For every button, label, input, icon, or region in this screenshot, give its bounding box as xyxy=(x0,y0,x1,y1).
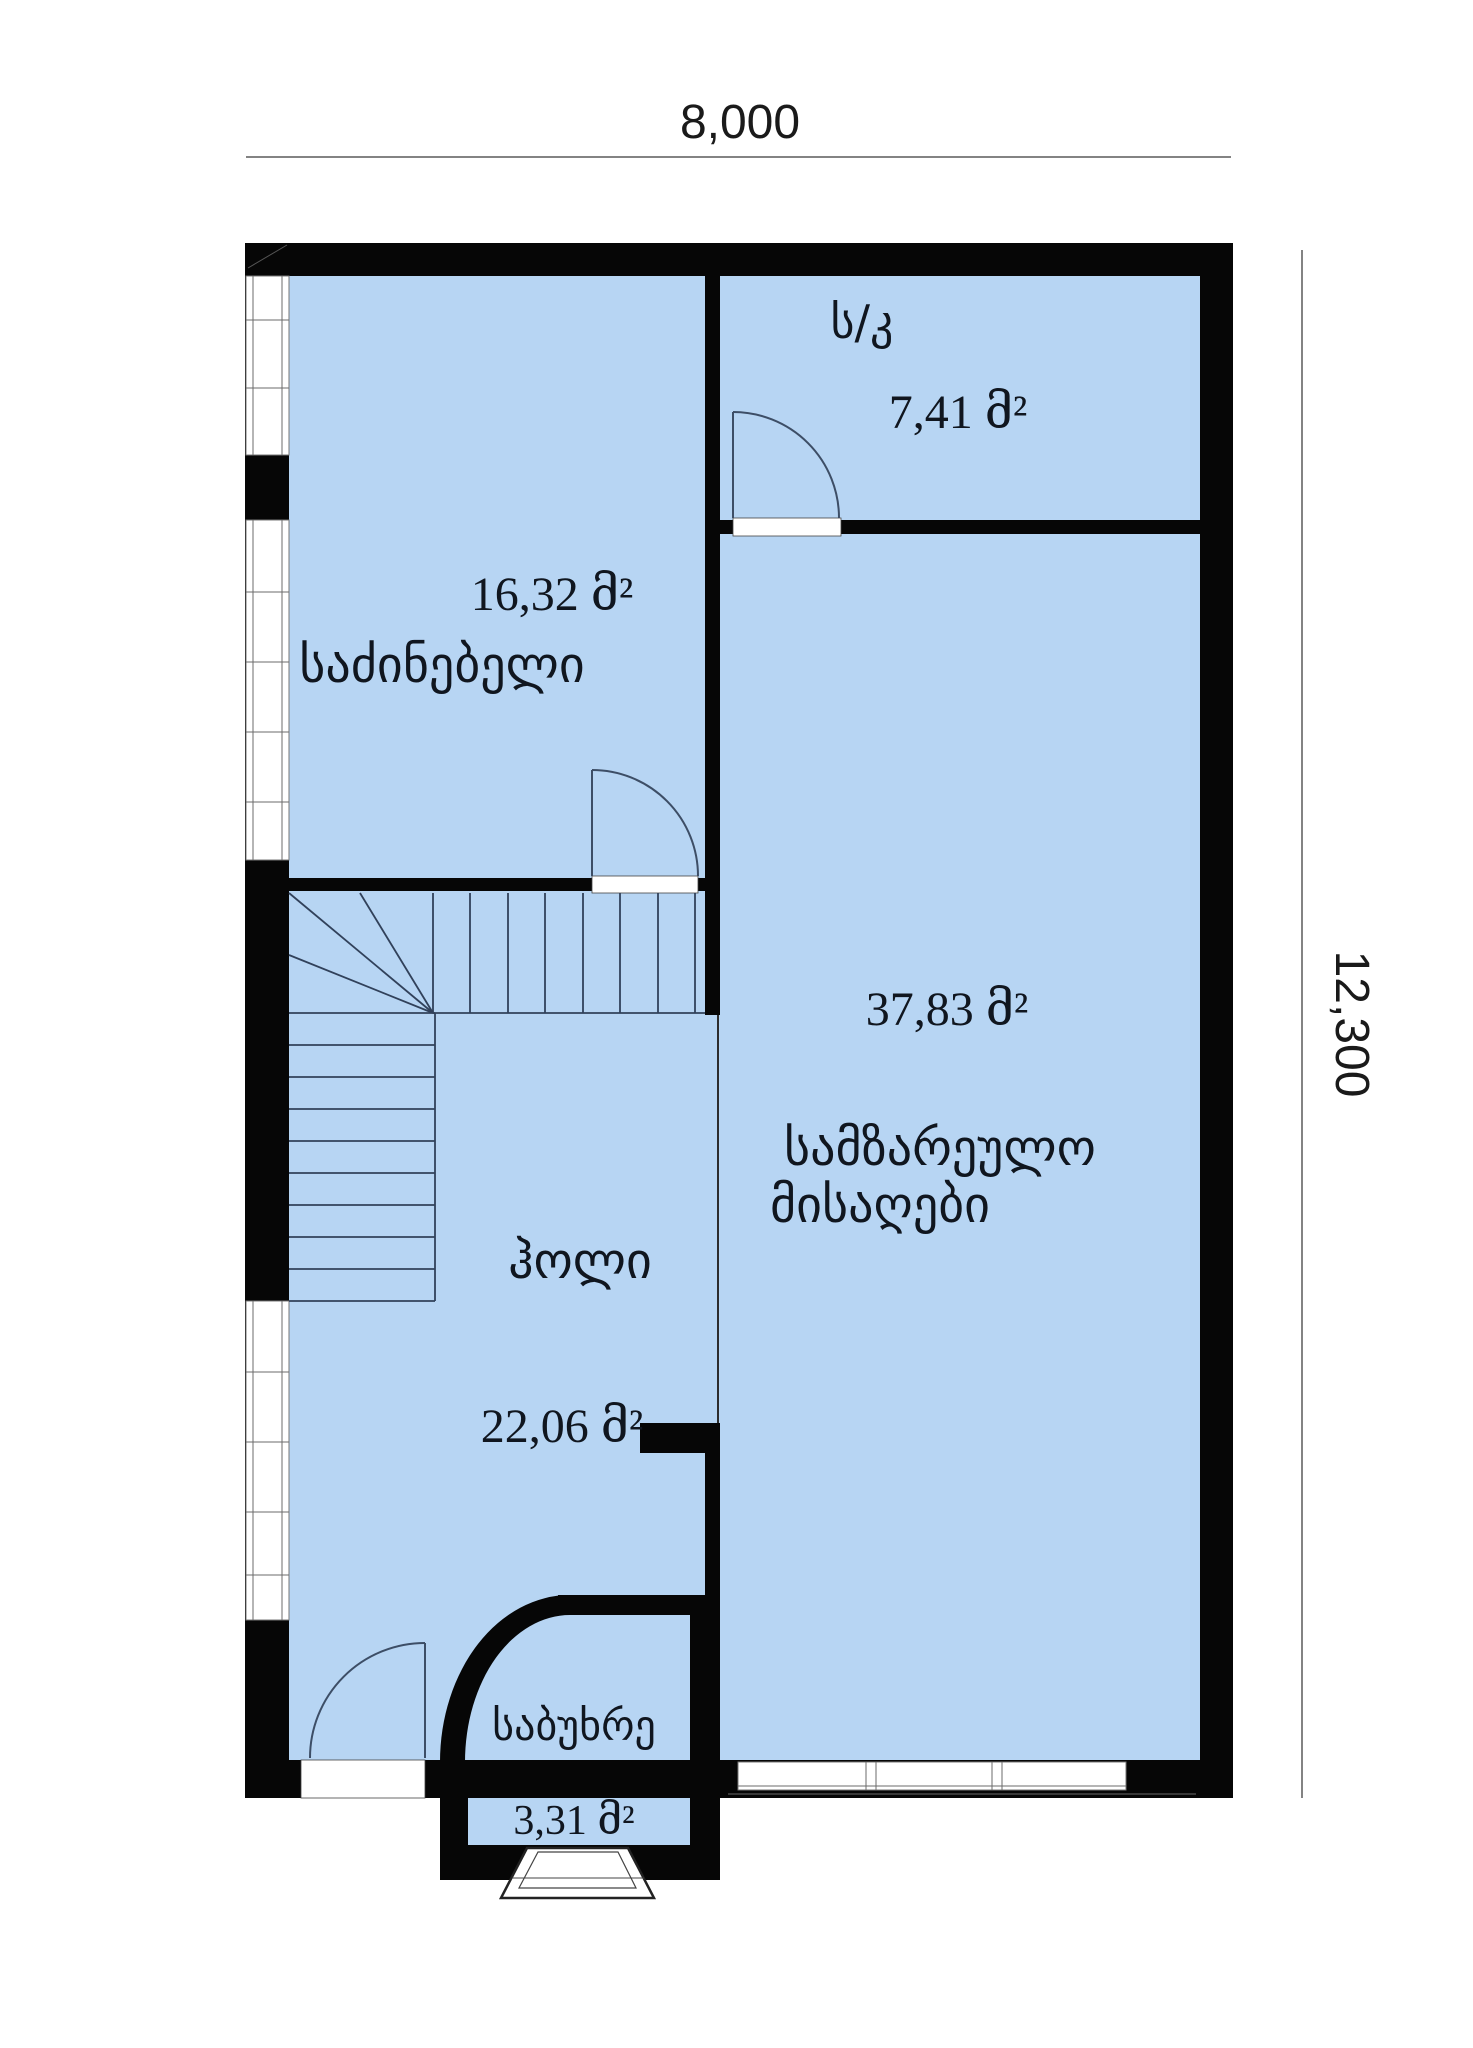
bathroom-door-opening xyxy=(733,518,841,536)
wall-top xyxy=(245,243,1233,276)
vestibule-wall-top xyxy=(558,1595,690,1615)
vestibule-wall-right xyxy=(690,1595,720,1880)
bedroom-window-upper xyxy=(246,276,289,455)
hall-area-label: 22,06 მ² xyxy=(481,1400,644,1453)
living-name-line1: სამზარეულო xyxy=(784,1119,1096,1177)
dimension-width-label: 8,000 xyxy=(680,96,800,149)
bedroom-area-label: 16,32 მ² xyxy=(471,568,634,621)
entry-steps-outline xyxy=(501,1848,654,1898)
bedroom-name-label: საძინებელი xyxy=(299,636,584,694)
bathroom-name-label: ს/კ xyxy=(830,295,893,349)
hall-name-label: ჰოლი xyxy=(508,1232,652,1290)
wall-hall-living-lower xyxy=(705,1423,720,1613)
vestibule-name-label: საბუხრე xyxy=(492,1701,656,1750)
vestibule-area-label: 3,31 მ² xyxy=(513,1798,634,1844)
floor-plan-page: 8,000 12,300 xyxy=(0,0,1473,2048)
bathroom-area-label: 7,41 მ² xyxy=(889,386,1028,439)
wall-hall-living-upper xyxy=(705,891,720,1015)
dimension-top: 8,000 xyxy=(246,96,1231,157)
dimension-right: 12,300 xyxy=(1302,250,1378,1798)
hall-window xyxy=(246,1301,289,1620)
living-window xyxy=(728,1762,1196,1794)
dimension-height-label: 12,300 xyxy=(1325,951,1378,1098)
bedroom-door-opening xyxy=(592,876,698,893)
living-name-line2: მისაღები xyxy=(770,1176,990,1234)
floor-main xyxy=(270,260,1210,1770)
floor-plan-drawing: 8,000 12,300 xyxy=(0,0,1473,2048)
entry-steps xyxy=(501,1848,654,1898)
entrance-door-opening xyxy=(301,1760,425,1798)
wall-bedroom-divider xyxy=(705,276,720,891)
bedroom-window-lower xyxy=(246,520,289,860)
wall-right xyxy=(1200,243,1233,1798)
living-area-label: 37,83 მ² xyxy=(866,983,1029,1036)
